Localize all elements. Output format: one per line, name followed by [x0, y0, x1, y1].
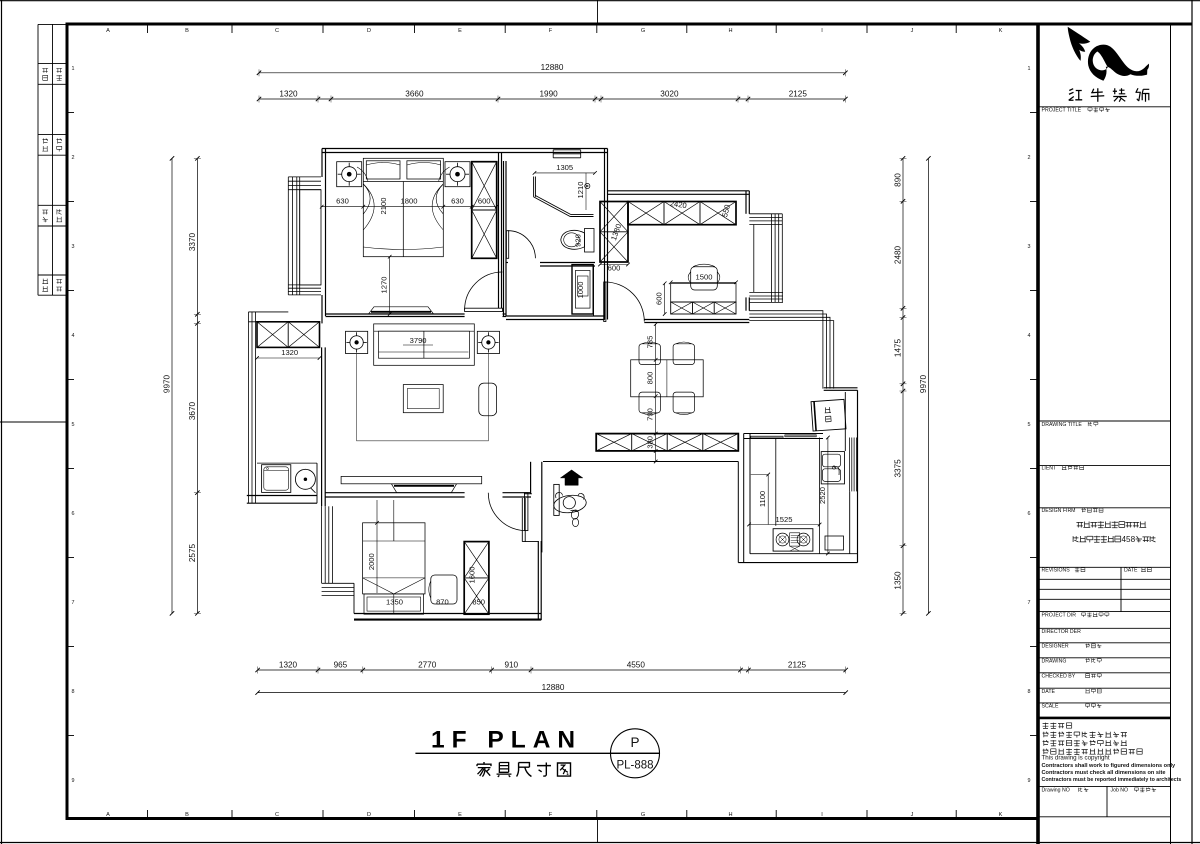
svg-text:9970: 9970 — [919, 374, 928, 393]
svg-text:PROJECT TITLE: PROJECT TITLE — [1042, 108, 1082, 114]
svg-text:7: 7 — [72, 600, 75, 606]
svg-text:600: 600 — [478, 197, 491, 206]
svg-text:1990: 1990 — [539, 90, 558, 99]
svg-text:CHECKED BY: CHECKED BY — [1042, 674, 1076, 680]
svg-text:1600: 1600 — [467, 567, 476, 584]
svg-text:1475: 1475 — [894, 338, 903, 357]
svg-text:910: 910 — [504, 661, 518, 670]
svg-text:6: 6 — [72, 511, 75, 517]
svg-text:G: G — [641, 812, 645, 818]
svg-text:C: C — [275, 812, 279, 818]
svg-text:B: B — [185, 812, 189, 818]
svg-text:6: 6 — [1028, 511, 1031, 517]
svg-text:DESIGN FIRM: DESIGN FIRM — [1042, 508, 1076, 514]
svg-text:12880: 12880 — [541, 63, 564, 72]
svg-text:DATE: DATE — [1042, 689, 1056, 695]
svg-text:12880: 12880 — [542, 683, 565, 692]
svg-text:1F PLAN: 1F PLAN — [431, 727, 582, 754]
svg-text:458: 458 — [1122, 535, 1136, 544]
svg-text:380: 380 — [646, 436, 655, 449]
svg-text:4550: 4550 — [627, 661, 646, 670]
svg-text:H: H — [728, 28, 732, 34]
svg-text:1: 1 — [1028, 66, 1031, 72]
svg-text:2125: 2125 — [789, 90, 808, 99]
svg-text:DATE: DATE — [1124, 568, 1138, 574]
svg-text:1320: 1320 — [279, 661, 298, 670]
svg-text:870: 870 — [436, 598, 449, 607]
svg-text:Contractors must be reported i: Contractors must be reported immediately… — [1042, 777, 1182, 783]
svg-text:PROJECT DIR: PROJECT DIR — [1042, 613, 1077, 619]
svg-text:REVISIONS: REVISIONS — [1042, 568, 1071, 574]
svg-text:Drawing NO: Drawing NO — [1042, 788, 1070, 794]
svg-text:3370: 3370 — [188, 232, 197, 251]
svg-text:1320: 1320 — [281, 348, 298, 357]
svg-text:920: 920 — [574, 234, 583, 247]
svg-text:600: 600 — [655, 292, 664, 305]
svg-text:E: E — [458, 812, 462, 818]
svg-text:A: A — [106, 812, 110, 818]
svg-text:1320: 1320 — [279, 90, 298, 99]
svg-text:DESIGNER: DESIGNER — [1042, 644, 1069, 650]
svg-text:C: C — [275, 28, 279, 34]
svg-text:DRAWING TITLE: DRAWING TITLE — [1042, 422, 1083, 428]
svg-text:DIRECTOR DER: DIRECTOR DER — [1042, 629, 1082, 635]
svg-text:3020: 3020 — [660, 90, 679, 99]
svg-text:K: K — [999, 28, 1003, 34]
svg-text:2000: 2000 — [367, 553, 376, 570]
svg-text:850: 850 — [472, 598, 485, 607]
svg-text:F: F — [549, 812, 553, 818]
svg-text:2100: 2100 — [379, 198, 388, 215]
svg-text:D: D — [367, 28, 371, 34]
svg-text:G: G — [641, 28, 645, 34]
svg-text:E: E — [458, 28, 462, 34]
svg-text:1100: 1100 — [758, 491, 767, 507]
svg-text:8: 8 — [72, 689, 75, 695]
svg-text:P: P — [630, 735, 639, 750]
svg-text:F: F — [549, 28, 553, 34]
svg-text:3: 3 — [1028, 244, 1031, 250]
svg-text:1000: 1000 — [576, 282, 585, 299]
svg-text:1500: 1500 — [696, 272, 713, 281]
svg-text:3660: 3660 — [405, 90, 424, 99]
svg-text:790: 790 — [646, 408, 655, 421]
svg-text:1525: 1525 — [776, 515, 793, 524]
svg-text:D: D — [367, 812, 371, 818]
svg-text:5: 5 — [72, 422, 75, 428]
svg-text:3375: 3375 — [894, 459, 903, 478]
svg-text:1350: 1350 — [894, 571, 903, 590]
svg-text:9: 9 — [72, 778, 75, 784]
svg-text:This drawing is copyright: This drawing is copyright — [1042, 755, 1110, 762]
svg-text:5: 5 — [1028, 422, 1031, 428]
svg-text:1800: 1800 — [401, 197, 418, 206]
svg-text:8: 8 — [1028, 689, 1031, 695]
svg-text:SCALE: SCALE — [1042, 704, 1060, 710]
svg-text:2770: 2770 — [418, 661, 437, 670]
svg-text:965: 965 — [334, 661, 348, 670]
svg-text:7: 7 — [1028, 600, 1031, 606]
svg-text:1270: 1270 — [380, 277, 389, 294]
svg-text:K: K — [999, 812, 1003, 818]
svg-text:J: J — [911, 812, 914, 818]
svg-text:LIENT: LIENT — [1042, 466, 1058, 472]
svg-text:PL-888: PL-888 — [616, 760, 653, 772]
svg-text:J: J — [911, 28, 914, 34]
svg-text:DRAWING: DRAWING — [1042, 658, 1067, 664]
svg-text:630: 630 — [336, 197, 349, 206]
svg-text:800: 800 — [646, 372, 655, 385]
svg-text:A: A — [106, 28, 110, 34]
svg-text:1305: 1305 — [556, 163, 573, 172]
svg-text:9970: 9970 — [163, 374, 172, 393]
svg-text:1210: 1210 — [576, 182, 585, 199]
svg-text:1350: 1350 — [386, 598, 403, 607]
svg-text:2520: 2520 — [818, 487, 827, 504]
svg-text:630: 630 — [451, 197, 464, 206]
svg-text:3670: 3670 — [188, 401, 197, 420]
svg-text:4: 4 — [1028, 333, 1031, 339]
svg-text:2480: 2480 — [894, 245, 903, 264]
svg-text:2: 2 — [72, 155, 75, 161]
svg-text:2125: 2125 — [788, 661, 807, 670]
svg-text:3: 3 — [72, 244, 75, 250]
svg-text:4: 4 — [72, 333, 75, 339]
svg-text:Contractors must check all dim: Contractors must check all dimensions on… — [1042, 770, 1166, 776]
svg-text:H: H — [728, 812, 732, 818]
svg-text:2: 2 — [1028, 155, 1031, 161]
svg-text:B: B — [185, 28, 189, 34]
svg-text:1: 1 — [72, 66, 75, 72]
svg-text:600: 600 — [608, 264, 621, 273]
svg-text:2575: 2575 — [188, 543, 197, 562]
svg-text:Contractors shall work to figu: Contractors shall work to figured dimens… — [1042, 763, 1177, 769]
svg-text:3790: 3790 — [410, 336, 427, 345]
svg-text:9: 9 — [1028, 778, 1031, 784]
svg-text:890: 890 — [894, 173, 903, 187]
svg-text:785: 785 — [646, 336, 655, 349]
svg-text:Job NO: Job NO — [1111, 788, 1129, 794]
